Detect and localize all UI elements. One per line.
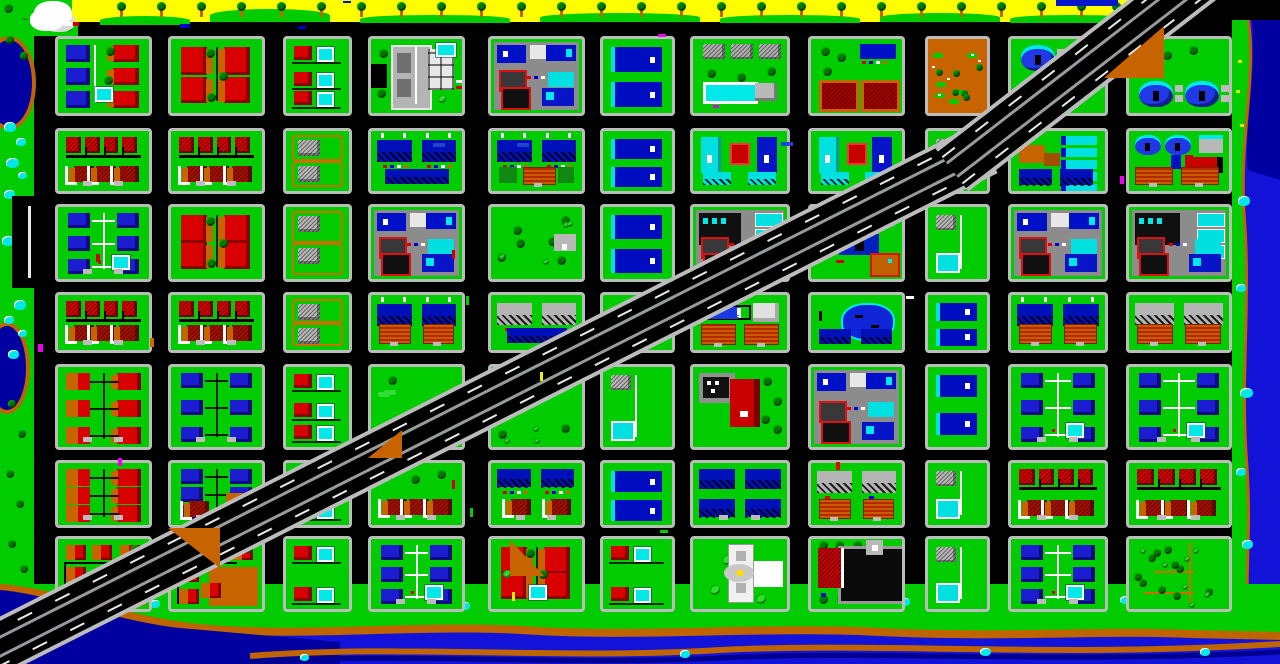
blue-store xyxy=(866,373,896,389)
row-house xyxy=(217,301,232,317)
post xyxy=(1044,297,1047,302)
fence xyxy=(1058,479,1060,488)
fence xyxy=(217,147,219,156)
sports-court xyxy=(1185,324,1221,344)
car-icon xyxy=(512,592,515,601)
dark-store xyxy=(501,87,531,110)
door xyxy=(965,309,970,315)
depot-building xyxy=(753,303,779,322)
house-wall xyxy=(91,327,97,341)
dot xyxy=(862,61,866,64)
dot xyxy=(1173,429,1176,432)
block-interior xyxy=(371,295,462,350)
city-block-comm[interactable] xyxy=(488,36,585,116)
car-icon xyxy=(343,1,351,3)
fence xyxy=(90,477,119,479)
row-house xyxy=(1200,469,1217,485)
blue-house xyxy=(66,68,90,85)
cart-icon xyxy=(866,540,883,555)
house-wall xyxy=(114,327,120,341)
barn xyxy=(819,80,859,112)
dot xyxy=(390,165,394,168)
tree-icon xyxy=(157,2,166,11)
city-block-rec[interactable] xyxy=(690,36,790,116)
driveway xyxy=(960,471,962,515)
curb-tab xyxy=(1150,342,1158,346)
city-block-mon[interactable] xyxy=(690,536,790,612)
curb-tab xyxy=(873,517,881,521)
driveway xyxy=(178,166,181,182)
row-house xyxy=(122,301,137,317)
tree-icon xyxy=(757,2,766,11)
row-house xyxy=(179,301,194,317)
curb-tab xyxy=(1149,183,1157,187)
speck xyxy=(978,60,981,62)
tree-icon xyxy=(957,2,966,11)
tree-icon xyxy=(503,570,511,578)
city-block-nRed[interactable] xyxy=(600,536,675,612)
cart-dot xyxy=(872,545,878,551)
pond xyxy=(680,650,690,658)
block-interior xyxy=(171,367,262,447)
fence xyxy=(104,147,106,156)
pad xyxy=(1175,95,1183,102)
red-house xyxy=(113,45,139,62)
palm-trunk-icon xyxy=(600,10,603,17)
sports-court xyxy=(423,324,455,344)
red-house xyxy=(181,77,207,103)
row-house xyxy=(1137,469,1154,485)
pool xyxy=(1066,585,1084,600)
door xyxy=(1023,219,1028,225)
block-interior xyxy=(1129,367,1229,447)
dot xyxy=(503,491,507,494)
city-block-subBlue[interactable] xyxy=(1008,364,1108,450)
path xyxy=(1189,543,1191,605)
curb-tab xyxy=(433,342,441,346)
gray-cottage xyxy=(298,248,320,264)
gray-cottage xyxy=(298,166,320,182)
city-block-domesCourts[interactable] xyxy=(1126,128,1232,194)
palm-trunk-icon xyxy=(440,10,443,17)
blue-house xyxy=(181,469,203,484)
city-block-nRed[interactable] xyxy=(283,364,352,450)
city-block-nBlue[interactable] xyxy=(600,128,675,194)
city-block-subBlue[interactable] xyxy=(1126,364,1232,450)
tree-icon xyxy=(1189,46,1198,55)
row-house xyxy=(1158,469,1175,485)
city-block-aptsBlue[interactable] xyxy=(488,128,585,194)
pond xyxy=(1242,540,1253,549)
roof xyxy=(78,400,90,417)
city-block-nBlue[interactable] xyxy=(925,364,990,450)
blue-house xyxy=(1073,567,1095,582)
curb-tab xyxy=(751,515,760,520)
driveway xyxy=(1187,500,1190,516)
city-block-cot[interactable] xyxy=(283,292,352,353)
pond xyxy=(980,648,991,656)
tree-icon xyxy=(543,259,549,265)
block-interior xyxy=(171,295,262,350)
blue-house xyxy=(117,213,139,228)
city-block-subOrg[interactable] xyxy=(55,364,152,450)
city-block-comm[interactable] xyxy=(1008,204,1108,282)
hall xyxy=(736,583,746,593)
car-icon xyxy=(540,372,543,381)
tree-icon xyxy=(1163,51,1172,60)
city-block-cot[interactable] xyxy=(283,128,352,194)
curb-tab xyxy=(83,269,92,274)
city-block-aptsCyan[interactable] xyxy=(690,128,790,194)
city-block-nGray[interactable] xyxy=(925,460,990,528)
tree-icon xyxy=(1164,546,1172,554)
city-block-barns[interactable] xyxy=(808,36,905,116)
apartment-slab xyxy=(748,172,776,185)
fence xyxy=(416,545,418,599)
slab-windows xyxy=(377,152,412,162)
dot xyxy=(404,165,408,168)
car-icon xyxy=(836,260,844,263)
city-block-comm[interactable] xyxy=(1126,204,1232,282)
beach-grass xyxy=(880,13,1000,22)
curb-tab xyxy=(1198,342,1206,346)
block-interior xyxy=(693,39,787,113)
city-block-aptsBlue[interactable] xyxy=(1008,292,1108,353)
city-block-aptsBlue[interactable] xyxy=(368,292,465,353)
blue-slab xyxy=(860,44,896,59)
tree-icon xyxy=(197,2,206,11)
tree-icon xyxy=(637,2,646,11)
blue-house xyxy=(181,373,203,388)
pond xyxy=(16,138,26,146)
driveway xyxy=(400,499,403,515)
block-interior xyxy=(171,39,262,113)
tree-icon xyxy=(1204,592,1210,598)
speck xyxy=(947,78,950,80)
city-block-nRed[interactable] xyxy=(283,536,352,612)
car-icon xyxy=(456,86,462,89)
palm-trunk-icon xyxy=(840,10,843,17)
curb-tab xyxy=(1069,437,1078,442)
dot xyxy=(407,243,411,246)
blue-slab xyxy=(936,303,977,321)
pool xyxy=(317,92,334,107)
car-icon xyxy=(470,508,473,517)
block-interior xyxy=(286,539,349,609)
curb-tab xyxy=(396,515,405,520)
red-house xyxy=(294,46,312,60)
tree-icon xyxy=(106,47,115,56)
palm-trunk-icon xyxy=(480,10,483,17)
blue-slab xyxy=(611,139,662,159)
city-block-civic[interactable] xyxy=(368,36,465,116)
palm-trunk-icon xyxy=(280,10,283,17)
door xyxy=(446,217,452,225)
city-block-pond[interactable] xyxy=(808,292,905,353)
driveway xyxy=(178,341,190,344)
tree-icon xyxy=(877,2,886,11)
palm-trunk-icon xyxy=(920,10,923,17)
hip-house xyxy=(511,499,531,515)
pond xyxy=(4,122,16,132)
city-block-dirt[interactable] xyxy=(925,36,990,116)
trim xyxy=(936,413,940,435)
gray-cottage xyxy=(298,304,320,320)
house-wall xyxy=(69,327,75,341)
palm-trunk-icon xyxy=(160,10,163,17)
city-block-park[interactable] xyxy=(488,204,585,282)
curb-tab xyxy=(227,181,236,186)
driveway xyxy=(542,499,545,515)
blue-house xyxy=(117,236,139,251)
city-block-nRed[interactable] xyxy=(283,36,352,116)
house-wall xyxy=(204,327,210,341)
blue-slab xyxy=(936,413,977,435)
house-wall xyxy=(218,245,225,268)
tree-icon xyxy=(277,2,286,11)
city-block-aptsGray[interactable] xyxy=(808,460,905,528)
dark-store xyxy=(1021,253,1051,276)
tree-icon xyxy=(597,2,606,11)
driveway xyxy=(65,182,77,185)
blue-house xyxy=(381,545,403,560)
curb-tab xyxy=(547,515,556,520)
house-wall xyxy=(382,501,388,515)
city-block-aptsHip[interactable] xyxy=(488,460,585,528)
city-block-rowRed[interactable] xyxy=(168,128,265,194)
city-block-rowRed[interactable] xyxy=(55,292,152,353)
driveway xyxy=(635,375,637,437)
curb-tab xyxy=(390,342,398,346)
driveway xyxy=(502,515,514,518)
driveway xyxy=(110,325,113,341)
pond xyxy=(1200,648,1210,656)
gray-cottage xyxy=(298,328,320,344)
city-block-nGray[interactable] xyxy=(925,204,990,282)
house-wall xyxy=(204,168,210,182)
apartment-slab xyxy=(377,140,412,162)
blue-house xyxy=(181,487,203,502)
apartment-slab xyxy=(862,471,897,493)
gray-cottage xyxy=(936,471,956,486)
tree-icon xyxy=(557,2,566,11)
door xyxy=(562,244,567,250)
tree-icon xyxy=(1189,602,1195,608)
city-block-forest[interactable] xyxy=(1126,536,1232,612)
fence xyxy=(292,62,341,64)
city-block-subRedL[interactable] xyxy=(168,204,265,282)
city-block-aptsGray[interactable] xyxy=(1126,292,1232,353)
city-block-mall[interactable] xyxy=(808,536,905,612)
driveway xyxy=(110,166,113,182)
curb-tab xyxy=(830,517,838,521)
dot xyxy=(517,491,521,494)
dot xyxy=(427,165,431,168)
curb-tab xyxy=(1069,515,1078,520)
pad xyxy=(1221,95,1229,102)
block-interior xyxy=(603,207,672,279)
row-house xyxy=(179,137,194,153)
block-interior xyxy=(171,207,262,279)
curb-tab xyxy=(114,269,123,274)
city-block-subRedL[interactable] xyxy=(168,36,265,116)
city-block-nGray[interactable] xyxy=(925,536,990,612)
door xyxy=(383,219,388,225)
city-block-comm[interactable] xyxy=(808,364,905,450)
city-block-rowRed[interactable] xyxy=(1008,460,1108,528)
tree-icon xyxy=(499,254,505,260)
post xyxy=(448,297,451,302)
car-icon xyxy=(517,143,529,147)
city-block-nBlue[interactable] xyxy=(600,204,675,282)
framed-store xyxy=(819,401,847,423)
curb-tab xyxy=(1191,437,1200,442)
dot xyxy=(566,491,570,494)
block-interior xyxy=(58,207,149,279)
pool xyxy=(529,585,547,600)
curb-tab xyxy=(83,437,92,442)
city-block-subOrg[interactable] xyxy=(55,460,152,528)
hall xyxy=(736,551,746,561)
dot xyxy=(1062,243,1066,246)
window xyxy=(707,381,711,385)
block-interior xyxy=(1129,295,1229,350)
blue-house xyxy=(68,236,90,251)
tree-icon xyxy=(1162,562,1168,568)
tree-icon xyxy=(710,585,720,595)
tree-icon xyxy=(4,4,13,13)
house-wall xyxy=(1140,502,1146,516)
blue-slab xyxy=(936,329,977,347)
city-block-rowRed[interactable] xyxy=(1126,460,1232,528)
fence xyxy=(216,47,218,101)
blue-slab xyxy=(611,82,662,107)
driveway xyxy=(180,501,183,517)
tree-icon xyxy=(104,76,113,85)
city-map[interactable] xyxy=(0,0,1280,664)
tree-icon xyxy=(936,69,943,76)
dot xyxy=(888,259,892,263)
city-block-subBlue[interactable] xyxy=(168,364,265,450)
blue-house xyxy=(1197,373,1219,388)
dot xyxy=(869,61,873,64)
orange-house xyxy=(117,487,141,504)
city-block-comm[interactable] xyxy=(368,204,465,282)
cyan-unit xyxy=(936,583,960,603)
post xyxy=(381,297,384,302)
city-block-aptsBlue[interactable] xyxy=(368,128,465,194)
slab-windows xyxy=(497,479,531,488)
city-block-subBlue[interactable] xyxy=(55,204,152,282)
city-block-subBlue[interactable] xyxy=(368,536,465,612)
red-house xyxy=(181,243,207,269)
blue-store xyxy=(422,254,454,272)
sports-court xyxy=(379,324,411,344)
door xyxy=(823,379,828,385)
driveway xyxy=(223,166,226,182)
barn xyxy=(861,80,901,112)
blue-house xyxy=(68,213,90,228)
blue-store xyxy=(817,373,846,391)
curb-tab xyxy=(534,183,542,187)
tree-icon xyxy=(1153,549,1161,557)
block-interior xyxy=(693,463,787,525)
trim xyxy=(611,82,615,107)
fence xyxy=(292,88,341,90)
dot xyxy=(883,61,887,64)
dot xyxy=(383,165,387,168)
sports-court xyxy=(819,499,851,519)
grass-patch xyxy=(936,82,946,87)
house-wall xyxy=(227,327,233,341)
slab-windows xyxy=(745,480,781,489)
driveway xyxy=(200,325,203,341)
city-block-nBlue[interactable] xyxy=(600,460,675,528)
tree-icon xyxy=(379,49,388,58)
tree-icon xyxy=(837,2,846,11)
city-block-rowRed[interactable] xyxy=(168,292,265,353)
blue-house xyxy=(230,469,252,484)
curb-tab xyxy=(396,599,405,604)
city-block-subMix[interactable] xyxy=(55,36,152,116)
car-icon xyxy=(781,142,793,146)
city-block-nBlue[interactable] xyxy=(600,36,675,116)
tree-icon xyxy=(557,256,566,265)
post xyxy=(1091,297,1094,302)
driveway xyxy=(1065,500,1068,516)
pool xyxy=(1066,423,1084,438)
fence xyxy=(198,147,200,156)
row-house xyxy=(217,137,232,153)
city-block-cot[interactable] xyxy=(283,204,352,282)
house-wall xyxy=(69,168,75,182)
fence xyxy=(216,215,218,267)
slab-windows xyxy=(817,483,852,493)
blue-house xyxy=(181,400,203,415)
beach-grass xyxy=(540,13,700,22)
fence xyxy=(235,147,237,156)
roof xyxy=(210,583,221,598)
sports-court xyxy=(1137,324,1173,344)
door xyxy=(740,411,748,417)
fence xyxy=(1200,479,1202,488)
red-house xyxy=(224,243,250,269)
city-block-rowRed[interactable] xyxy=(55,128,152,194)
orange-shop xyxy=(870,253,900,277)
city-block-subBlue[interactable] xyxy=(1008,536,1108,612)
curb-tab xyxy=(227,340,236,345)
red-house xyxy=(181,47,207,75)
house-wall xyxy=(91,168,97,182)
apartment-slab xyxy=(699,469,735,489)
city-block-nBlue[interactable] xyxy=(925,292,990,353)
pool xyxy=(634,547,651,562)
block-interior xyxy=(1011,207,1105,279)
driveway xyxy=(65,166,68,182)
car-icon xyxy=(660,530,668,533)
city-block-ind2[interactable] xyxy=(690,364,790,450)
fence xyxy=(235,311,237,320)
big-pool xyxy=(706,85,755,101)
pool xyxy=(425,585,443,600)
curb-tab xyxy=(114,437,123,442)
curb-tab xyxy=(1195,183,1203,187)
door xyxy=(1153,91,1159,101)
city-block-nGray[interactable] xyxy=(600,364,675,450)
dot xyxy=(541,76,545,79)
water-bar xyxy=(1056,0,1118,6)
city-block-aptsBlue2[interactable] xyxy=(690,460,790,528)
